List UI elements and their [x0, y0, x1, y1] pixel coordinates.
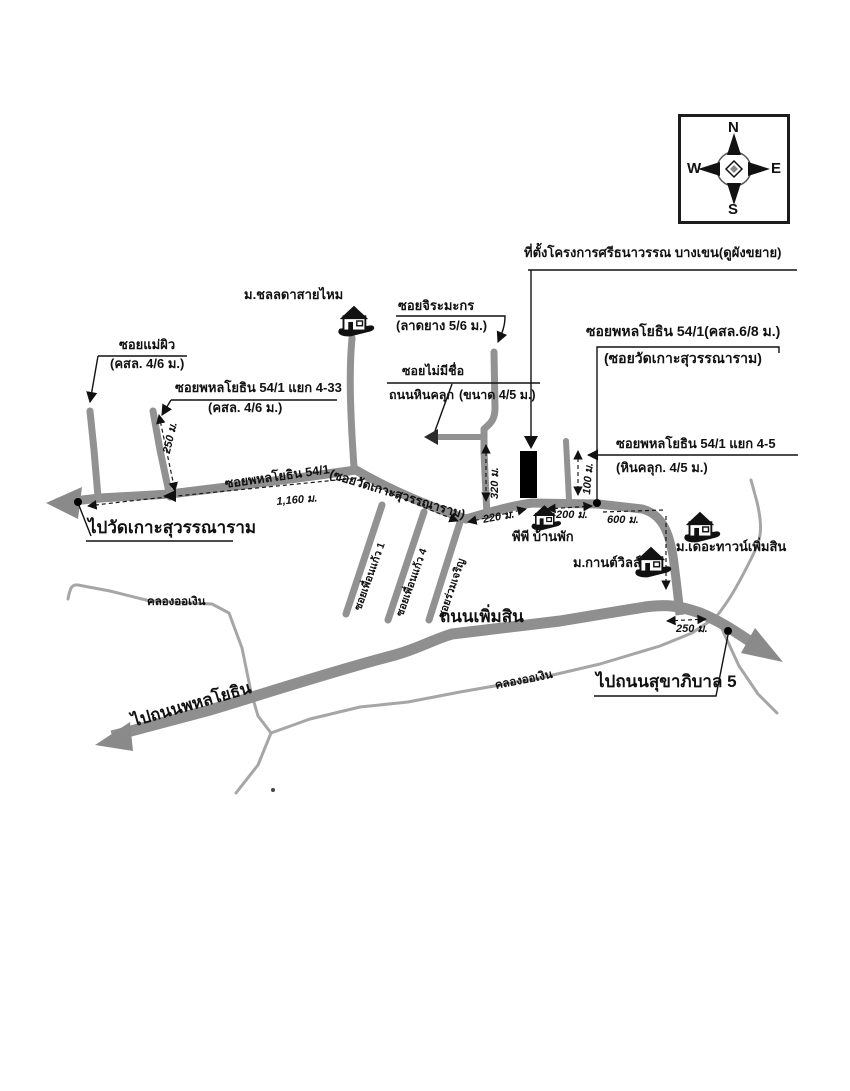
label-thanon-permsin: ถนนเพิ่มสิน [440, 607, 524, 627]
label-to-wat-kao: ไปวัดเกาะสุวรรณาราม [88, 518, 256, 538]
label-soi-jiramakorn: ซอยจิระมะกร [398, 299, 474, 314]
label-pp-banpak: พีพี บ้านพัก [512, 530, 574, 545]
label-yaek-4-33: ซอยพหลโยธิน 54/1 แยก 4-33 [175, 381, 342, 396]
label-mu-chonlada: ม.ชลลดาสายไหม [244, 288, 343, 303]
label-yaek-4-5: ซอยพหลโยธิน 54/1 แยก 4-5 [616, 437, 776, 452]
dim-250-permsin: 250 ม. [676, 623, 708, 636]
house-the-town [684, 512, 720, 543]
label-project-site: ที่ตั้งโครงการศรีธนาวรรณ บางเขน(ดูผังขยา… [524, 246, 781, 261]
road-yaek-4-5 [566, 441, 569, 500]
ink-speck [271, 788, 275, 792]
label-yaek-4-5-surface: (หินคลุก. 4/5 ม.) [616, 461, 708, 476]
label-soi-no-name: ซอยไม่มีชื่อ [402, 364, 464, 378]
road-maephew [90, 411, 98, 497]
arrow-no-name-road [424, 429, 438, 445]
dot-wat-kao-alias [593, 499, 601, 507]
dot-sukhaphiban [724, 627, 732, 635]
label-to-sukhaphiban: ไปถนนสุขาภิบาล 5 [596, 672, 737, 692]
compass-rose: N S W E [678, 114, 790, 224]
label-soi-phahon-54-1: ซอยพหลโยธิน 54/1(คสล.6/8 ม.) [586, 323, 780, 339]
compass-s: S [728, 201, 738, 218]
label-karn-ville: ม.กานต์วิลล์ [573, 556, 641, 571]
compass-e: E [771, 160, 781, 177]
label-soi-maephew: ซอยแม่ผิว [119, 338, 175, 353]
label-khlong-left: คลองออเงิน [147, 596, 205, 609]
label-gravel-size: (ขนาด 4/5 ม.) [459, 388, 536, 402]
dim-320: 320 ม. [489, 467, 502, 499]
label-jiramakorn-surface: (ลาดยาง 5/6 ม.) [396, 319, 487, 334]
label-gravel-road: ถนนหินคลุก [389, 388, 454, 402]
arrow-project-site [524, 436, 538, 449]
house-chonlada [338, 306, 374, 337]
project-site-marker [520, 451, 537, 498]
road-chonlada [350, 338, 354, 467]
dot-wat-kao [74, 498, 82, 506]
label-soi-wat-kao-alias: (ซอยวัดเกาะสุวรรณาราม) [604, 350, 762, 366]
label-the-town: ม.เดอะทาวน์เพิ่มสิน [676, 540, 786, 555]
hand-drawn-location-map: ที่ตั้งโครงการศรีธนาวรรณ บางเขน(ดูผังขยา… [0, 0, 850, 1091]
arrow-to-phahonyothin [95, 722, 133, 751]
compass-n: N [728, 119, 739, 136]
compass-w: W [687, 160, 701, 177]
dim-200: 200 ม. [556, 509, 588, 522]
label-yaek-4-33-surface: (คสล. 4/6 ม.) [208, 401, 282, 416]
dim-600: 600 ม. [607, 514, 639, 527]
label-maephew-surface: (คสล. 4/6 ม.) [110, 357, 184, 372]
